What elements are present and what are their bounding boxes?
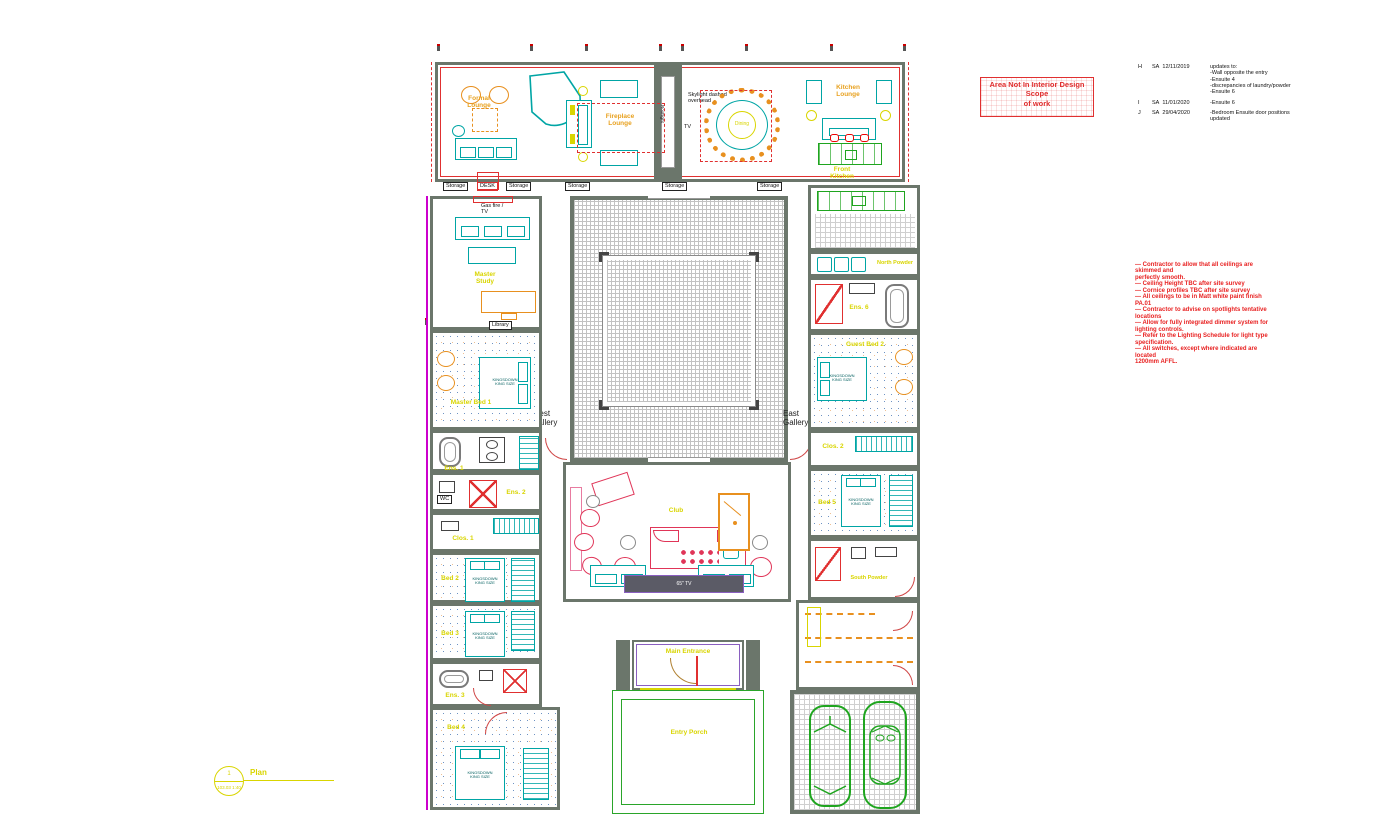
basin-vanity	[875, 547, 897, 557]
side-table	[880, 110, 891, 121]
corner-mark	[749, 400, 759, 410]
room-label-south-powder: South Powder	[841, 575, 897, 581]
room-label-guest-bed-2: Guest Bed 2	[837, 341, 893, 348]
pillow	[518, 384, 528, 404]
armchair	[876, 80, 892, 104]
entry-pillar	[616, 640, 630, 690]
sofa-cushion	[484, 226, 502, 237]
entry-door-leaf	[696, 656, 698, 686]
washing-machine	[817, 257, 832, 272]
scope-note-box: Area Not In Interior Design Scope of wor…	[980, 77, 1094, 117]
cad-floor-plan-sheet: { "colors": { "wall": "#6b766b", "cad_ye…	[0, 0, 1389, 828]
bed: KINGSDOWN KING SIZE	[841, 475, 881, 527]
room-label-ens-2: Ens. 2	[503, 489, 529, 496]
storage-label: Storage	[565, 182, 590, 191]
bar-stool	[752, 535, 768, 550]
sofa-cushion	[595, 574, 617, 584]
magenta-edge-line	[426, 196, 428, 810]
wardrobe	[519, 436, 539, 470]
room-master-study: Gas fire / TV Master Study Library	[430, 196, 542, 330]
bed: KINGSDOWN KING SIZE	[817, 357, 867, 401]
grid-tick	[437, 44, 440, 51]
door-swing	[895, 577, 915, 597]
east-gallery-label: East Gallery	[783, 410, 808, 428]
scope-dashed-line-right	[908, 62, 909, 182]
storage-label: Storage	[506, 182, 531, 191]
wc-toilet	[479, 670, 493, 681]
wardrobe	[493, 518, 539, 534]
bed-brand-tag: KINGSDOWN KING SIZE	[842, 498, 880, 506]
room-label-bed-3: Bed 3	[437, 630, 463, 637]
fireplace	[473, 196, 513, 203]
armchair	[895, 349, 913, 365]
shower	[815, 284, 843, 324]
grid-tick	[903, 44, 906, 51]
pillow	[480, 749, 500, 759]
sofa-cushion	[478, 147, 494, 158]
shower	[815, 547, 841, 581]
room-label-clos-1: Clos. 1	[447, 535, 479, 542]
basin	[486, 452, 498, 461]
desk-chair	[501, 313, 517, 320]
pillow	[484, 614, 500, 623]
storage-label: Storage	[662, 182, 687, 191]
basin-vanity	[441, 521, 459, 531]
drawing-title: Plan	[250, 768, 280, 777]
sofa	[455, 217, 530, 240]
room-label-main-entrance: Main Entrance	[648, 648, 728, 655]
room-label-formal-lounge: Formal Lounge	[458, 95, 500, 110]
vanity	[849, 283, 875, 294]
bar-stool	[620, 535, 636, 550]
media-wall: 65" TV	[624, 575, 744, 593]
armchair	[437, 351, 455, 367]
side-table	[806, 110, 817, 121]
skylight-dashed-outline	[700, 90, 772, 162]
skylight-dashed-outline	[577, 103, 665, 153]
bed-brand-tag: KINGSDOWN KING SIZE	[466, 632, 504, 640]
high-level-shelf	[805, 661, 913, 663]
door-swing	[893, 611, 913, 631]
grid-tick	[585, 44, 588, 51]
car-icon	[806, 702, 854, 810]
wc-toilet	[851, 547, 866, 559]
revision-desc: -Ensuite 6	[1210, 100, 1320, 106]
door-swing	[893, 665, 913, 685]
grid-tick	[830, 44, 833, 51]
wardrobe	[855, 436, 913, 452]
bathtub	[885, 284, 909, 328]
room-ens-6: Ens. 6	[808, 277, 920, 332]
room-club: Club 65" TV	[563, 462, 791, 602]
grid-tick	[659, 44, 662, 51]
room-label-entry-porch: Entry Porch	[649, 729, 729, 736]
bar-stool	[860, 134, 869, 142]
av-equipment	[570, 134, 575, 144]
shower	[503, 669, 527, 693]
armchair	[806, 80, 822, 104]
bar-stool	[845, 134, 854, 142]
garage	[790, 690, 920, 814]
desk-outline	[477, 172, 499, 190]
wardrobe	[889, 475, 913, 527]
pool-ball	[733, 521, 737, 525]
grid-tick	[745, 44, 748, 51]
pool-table	[718, 493, 750, 551]
coffee-table	[472, 108, 498, 132]
tall-cupboard	[807, 607, 821, 647]
revision-row: I SA 11/01/2020 -Ensuite 6	[1138, 100, 1338, 106]
room-label-fireplace-lounge: Fireplace Lounge	[600, 113, 640, 128]
sofa-cushion	[461, 226, 479, 237]
armchair	[437, 375, 455, 391]
revision-by-date: SA 12/11/2019	[1152, 64, 1210, 96]
side-table	[452, 125, 465, 137]
room-label-bed-2: Bed 2	[437, 575, 463, 582]
revision-id: J	[1138, 110, 1152, 123]
washing-machine	[851, 257, 866, 272]
door-swing	[485, 712, 507, 734]
bed-brand-tag: KINGSDOWN KING SIZE	[480, 378, 530, 386]
wardrobe	[511, 558, 535, 602]
corner-mark	[599, 400, 609, 410]
revision-desc: -Bedroom Ensuite door positions updated	[1210, 110, 1320, 123]
detail-number: 1	[215, 767, 243, 782]
entry-porch-inner-outline	[621, 699, 755, 805]
sofa	[468, 247, 516, 264]
wardrobe	[511, 611, 535, 651]
ceiling-lighting-notes: — Contractor to allow that all ceilings …	[1135, 262, 1280, 366]
car-icon	[860, 698, 910, 812]
sofa	[455, 138, 517, 160]
bathtub	[439, 437, 461, 467]
room-label-ens-6: Ens. 6	[845, 304, 873, 311]
room-label-kitchen-lounge: Kitchen Lounge	[826, 84, 870, 99]
bar-shelving	[570, 487, 582, 571]
kitchen-counter	[817, 191, 905, 211]
bed-brand-tag: KINGSDOWN KING SIZE	[818, 374, 866, 382]
revision-table: H SA 12/11/2019 updates to: -Wall opposi…	[1138, 64, 1338, 127]
room-ens-3: Ens. 3	[430, 661, 542, 707]
room-back-kitchen	[808, 185, 920, 251]
revision-desc: updates to: -Wall opposite the entry -En…	[1210, 64, 1320, 96]
room-bed-5: KINGSDOWN KING SIZE Bed 5	[808, 468, 920, 538]
bed-brand-tag: KINGSDOWN KING SIZE	[466, 577, 504, 585]
room-laundry: North Powder	[808, 251, 920, 277]
title-underline	[244, 780, 334, 781]
room-ens-1: Ens. 1	[430, 430, 542, 472]
sofa-cushion	[496, 147, 512, 158]
bathtub	[439, 670, 469, 688]
pillow	[820, 380, 830, 396]
basin	[486, 440, 498, 449]
storage-label: Storage	[443, 182, 468, 191]
sofa	[600, 80, 638, 98]
wc-toilet	[439, 481, 455, 493]
sofa-cushion	[507, 226, 525, 237]
revision-by-date: SA 29/04/2020	[1152, 110, 1210, 123]
room-label-club: Club	[658, 507, 694, 514]
revision-row: J SA 29/04/2020 -Bedroom Ensuite door po…	[1138, 110, 1338, 123]
grid-tick	[530, 44, 533, 51]
room-label-master-bed: Master Bed 1	[445, 399, 497, 406]
revision-row: H SA 12/11/2019 updates to: -Wall opposi…	[1138, 64, 1338, 96]
shower	[469, 480, 497, 508]
door-swing	[545, 438, 567, 460]
room-master-bed: KINGSDOWN KING SIZE Master Bed 1	[430, 330, 542, 430]
courtyard-door-opening	[648, 193, 710, 199]
room-store-mud	[796, 600, 920, 690]
drawing-title-bubble: 1 103.03 1:40	[214, 766, 244, 796]
bar-corner	[653, 530, 679, 542]
room-main-entrance: Main Entrance	[632, 640, 744, 690]
room-bed-2: KINGSDOWN KING SIZE Bed 2	[430, 552, 542, 603]
entry-pillar	[746, 640, 760, 690]
high-level-shelf	[805, 637, 913, 639]
side-table	[578, 152, 588, 162]
study-desk	[481, 291, 536, 313]
room-bed-4: KINGSDOWN KING SIZE Bed 4	[430, 707, 560, 810]
double-vanity	[479, 437, 505, 463]
corner-mark	[749, 252, 759, 262]
storage-label: Storage	[757, 182, 782, 191]
bed: KINGSDOWN KING SIZE	[465, 611, 505, 657]
corner-mark	[599, 252, 609, 262]
bed: KINGSDOWN KING SIZE	[465, 558, 505, 602]
wardrobe	[523, 748, 549, 800]
room-south-powder: South Powder	[808, 538, 920, 600]
kitchen-island	[818, 143, 882, 165]
courtyard-inner-hatch	[607, 260, 751, 402]
bottle-cluster	[679, 548, 719, 566]
bar-stool	[830, 134, 839, 142]
pillow	[484, 561, 500, 570]
room-label-ens-3: Ens. 3	[441, 692, 469, 699]
desk-chair	[586, 495, 600, 508]
courtyard-inner-court	[602, 255, 756, 407]
revision-by-date: SA 11/01/2020	[1152, 100, 1210, 106]
room-label-clos-2: Clos. 2	[817, 443, 849, 450]
room-label-front-kitchen: Front Kitchen	[824, 166, 860, 181]
wc-label: WC	[437, 495, 452, 504]
side-table	[578, 86, 588, 96]
entry-porch-outline: Entry Porch	[612, 690, 764, 814]
room-label-bed-4: Bed 4	[441, 724, 471, 731]
room-label-master-study: Master Study	[463, 271, 507, 286]
room-label-bed-5: Bed 5	[813, 499, 841, 506]
sink	[845, 150, 857, 160]
kitchen-tiled-floor	[815, 214, 915, 248]
room-clos-1: Clos. 1	[430, 512, 542, 552]
sofa-cushion	[460, 147, 476, 158]
central-courtyard	[570, 196, 788, 462]
revision-id: I	[1138, 100, 1152, 106]
revision-id: H	[1138, 64, 1152, 96]
tv-note: TV	[684, 124, 691, 130]
room-clos-2: Clos. 2	[808, 430, 920, 468]
scope-dashed-line-left	[431, 62, 432, 182]
av-equipment	[570, 105, 575, 115]
room-guest-bed-2: KINGSDOWN KING SIZE Guest Bed 2	[808, 332, 920, 430]
grid-tick	[681, 44, 684, 51]
tv-65-label: 65" TV	[625, 576, 743, 592]
door-swing	[473, 688, 491, 706]
sheet-ref-scale: 103.03 1:40	[215, 782, 243, 794]
gas-fire-note: Gas fire / TV	[481, 203, 503, 216]
room-label-north-powder: North Powder	[869, 260, 921, 266]
bed: KINGSDOWN KING SIZE	[455, 746, 505, 800]
room-bed-3: KINGSDOWN KING SIZE Bed 3	[430, 603, 542, 661]
room-ens-2: WC Ens. 2	[430, 472, 542, 512]
bed-brand-tag: KINGSDOWN KING SIZE	[456, 771, 504, 779]
washing-machine	[834, 257, 849, 272]
pillow	[460, 749, 480, 759]
armchair	[895, 379, 913, 395]
library-label: Library	[489, 321, 512, 330]
pillow	[860, 478, 876, 487]
cue-stick	[724, 501, 741, 516]
cooktop	[852, 196, 866, 206]
